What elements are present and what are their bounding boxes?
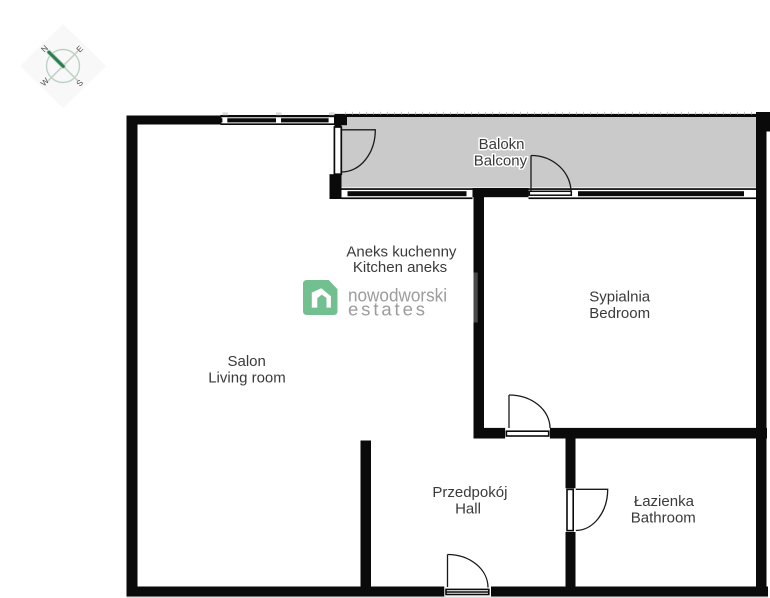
svg-text:Bathroom: Bathroom bbox=[631, 509, 696, 526]
svg-text:Hall: Hall bbox=[455, 501, 481, 518]
svg-text:Balcony: Balcony bbox=[474, 153, 528, 170]
svg-text:Sypialnia: Sypialnia bbox=[589, 288, 651, 305]
svg-text:Living room: Living room bbox=[208, 369, 286, 386]
svg-text:Aneks kuchenny: Aneks kuchenny bbox=[346, 243, 457, 260]
svg-text:Bedroom: Bedroom bbox=[589, 305, 650, 322]
svg-text:Kitchen aneks: Kitchen aneks bbox=[353, 259, 447, 276]
svg-text:Salon: Salon bbox=[228, 353, 266, 370]
svg-text:Łazienka: Łazienka bbox=[634, 493, 695, 510]
svg-text:Przedpokój: Przedpokój bbox=[432, 484, 507, 501]
svg-text:Balokn: Balokn bbox=[479, 136, 525, 153]
